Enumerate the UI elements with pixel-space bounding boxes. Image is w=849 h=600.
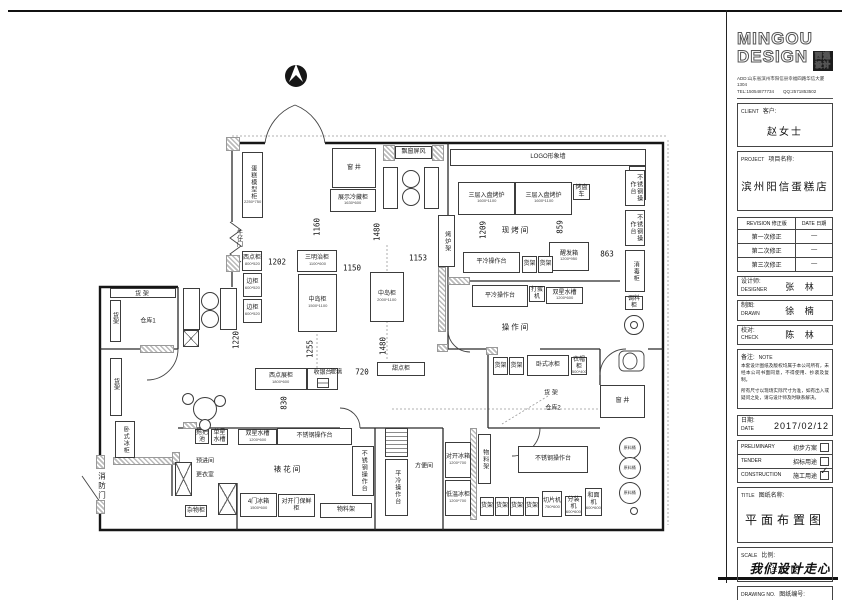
fixture-label: 不锈钢操作台	[296, 433, 332, 440]
circle-label: 原料桶	[624, 466, 636, 470]
wall-hatch	[113, 457, 175, 465]
wall-hatch	[226, 255, 240, 272]
furniture-outline	[385, 428, 408, 457]
fixture-box: 平冷操作台	[472, 285, 528, 307]
fixture-box: 不锈钢操作台	[625, 170, 645, 206]
furniture-outline	[175, 462, 192, 496]
room-label: 仓库1	[140, 316, 155, 325]
project-box: PROJECT 项目名称: 滨州阳信蛋糕店	[737, 151, 833, 211]
fixture-label: 货架	[526, 503, 538, 510]
fixture-box: 窗 井	[332, 148, 376, 188]
fixture-label: 甜点柜	[392, 366, 410, 373]
fixture-label: 不锈钢操作台	[628, 211, 641, 245]
table-circle	[402, 170, 420, 188]
fixture-box: 蛋糕模型柜2250*750	[242, 152, 263, 218]
fixture-label: 平冷操作台	[476, 259, 506, 266]
project-value: 滨州阳信蛋糕店	[741, 179, 829, 194]
room-label: 玻璃	[330, 367, 342, 376]
fixture-label: 衣帽柜	[572, 357, 586, 370]
company-phone: TEL:15054877734 QQ:2571853502	[737, 89, 833, 96]
fixture-box: 打蛋机	[529, 286, 545, 302]
client-label-cn: 客户:	[763, 106, 777, 115]
wall-hatch	[140, 345, 174, 353]
wall-hatch	[470, 428, 477, 520]
wall-hatch	[486, 347, 498, 355]
usage-checkbox	[820, 471, 829, 480]
check-row: 校对:CHECK 陈 林	[737, 325, 833, 345]
dimension-label: 1480	[373, 223, 382, 241]
fixture-label: 烤盘车	[574, 185, 589, 198]
furniture-outline	[183, 330, 199, 347]
fixture-label: 飘窗屏风	[401, 149, 425, 156]
fixture-box: 分装机600*600	[565, 496, 582, 516]
stamp-line-1: 西遇	[815, 52, 831, 61]
company-contact: ADD:山东省滨州市阳信县幸福四路华信大厦1304 TEL:1505487773…	[737, 76, 833, 99]
fixture-label: 分装机	[566, 497, 581, 510]
table-circle	[182, 393, 194, 405]
fixture-size: 600*520	[245, 312, 260, 316]
fixture-label: 调料柜	[626, 296, 642, 309]
check-name: 陈 林	[771, 328, 832, 341]
wall-hatch	[438, 267, 446, 332]
table-circle	[214, 395, 226, 407]
table-circle	[630, 507, 638, 515]
dimension-label: 830	[280, 396, 289, 410]
room-label: 消防门	[97, 472, 108, 501]
fixture-label: 不锈钢操作台	[360, 450, 367, 492]
fixture-size: 1500*1100	[308, 304, 327, 308]
room-label: 牛仔门	[235, 229, 244, 247]
fixture-box: 卧式冰柜	[527, 355, 569, 376]
fixture-box: 货架	[495, 497, 509, 516]
table-circle	[402, 188, 420, 206]
fixture-box: 消毒柜	[625, 250, 645, 292]
fixture-box: 双星水槽1200*600	[238, 429, 277, 445]
revision-label: 第三次修正	[738, 257, 796, 271]
furniture-outline	[218, 483, 237, 515]
fixture-box: 和面机600*600	[585, 488, 602, 516]
dimension-label: 1150	[343, 264, 361, 273]
fixture-size: 1500*600	[250, 506, 267, 510]
fixture-size: 1100*600	[308, 262, 325, 266]
fixture-label: 货架	[523, 261, 535, 268]
dwgno-label-en: DRAWING NO.	[741, 592, 775, 598]
room-label: 货架	[111, 312, 120, 324]
drawn-name: 徐 楠	[771, 304, 832, 317]
dimension-label: 1220	[232, 331, 241, 349]
table-circle	[201, 292, 219, 310]
dimension-label: 859	[556, 220, 565, 234]
fixture-box: 西点展柜1800*600	[255, 368, 307, 390]
table-circle	[201, 310, 219, 328]
fixture-label: 消毒柜	[632, 261, 639, 282]
company-address: ADD:山东省滨州市阳信县幸福四路华信大厦1304	[737, 76, 833, 90]
usage-label-cn: 招标用途	[793, 457, 817, 466]
revision-date: —	[796, 229, 833, 243]
fixture-box: 西点柜800*520	[242, 251, 262, 271]
fixture-box: 货架	[509, 357, 524, 375]
wall-hatch	[432, 145, 444, 161]
fixture-box: 飘窗屏风	[395, 146, 432, 159]
fixture-box: 双星水槽1200*600	[546, 287, 583, 304]
client-value: 赵女士	[741, 123, 829, 138]
fixture-label: 拖把池	[196, 430, 208, 443]
revision-label: 第二次修正	[738, 243, 796, 257]
wall-hatch	[437, 344, 448, 352]
fixture-label: 物料架	[337, 507, 355, 514]
fixture-box: 窗 井	[600, 385, 645, 418]
usage-checkbox	[820, 457, 829, 466]
fixture-size: 600*520	[245, 286, 260, 290]
title-label-en: TITLE	[741, 493, 755, 499]
dwgno-label-cn: 图纸编号:	[779, 589, 805, 598]
fixture-box: 不锈钢操作台	[625, 210, 645, 246]
fixture-box: 不锈钢操作台	[352, 446, 374, 496]
fixture-label: 烤炉架	[443, 231, 450, 252]
barrel-circle: 原料桶	[619, 457, 641, 479]
revision-row: 第三次修正—	[738, 257, 833, 271]
fixture-box: 物料架	[478, 434, 491, 484]
fixture-box: 切片机750*600	[542, 491, 562, 517]
fixture-box: 货架	[522, 256, 537, 273]
fixture-box: 货架	[510, 497, 524, 516]
fixture-box: 不锈钢操作台	[277, 428, 352, 445]
brand-mark-icon	[285, 64, 307, 87]
revision-header: REVISION 修正版	[738, 217, 796, 229]
fixture-label: 杂物柜	[187, 508, 205, 515]
fixture-box: 调料柜	[625, 296, 643, 310]
drawing-sheet: 蛋糕模型柜2250*750窗 井展示冷藏柜1630*600飘窗屏风LOGO形象墙…	[0, 0, 849, 600]
room-label: 方便间	[415, 461, 433, 470]
fixture-box: 对开冰箱1200*700	[445, 442, 471, 478]
logo-stamp: 西遇 设计	[813, 51, 833, 71]
drawing-title: 平面布置图	[741, 511, 829, 528]
fixture-box: 平冷操作台	[385, 459, 408, 516]
room-label: 预进间	[196, 456, 214, 465]
dimension-label: 1209	[479, 221, 488, 239]
company-slogan: 我们设计走心	[745, 558, 835, 577]
fixture-box: 烤炉架	[438, 215, 455, 267]
wall-hatch	[96, 500, 105, 514]
circle-label: 原料桶	[624, 446, 636, 450]
dimension-label: 863	[600, 250, 614, 259]
usage-label-en: PRELIMINARY	[741, 444, 775, 450]
date-value: 2017/02/12	[771, 421, 832, 431]
fixture-label: 卧式冰柜	[122, 426, 129, 454]
designer-name: 张 林	[771, 280, 832, 293]
company-logo: MINGOU DESIGN 西遇 设计	[737, 30, 833, 66]
fixture-label: 货架	[511, 503, 523, 510]
furniture-outline	[424, 167, 439, 209]
fixture-box: 烤盘车	[573, 184, 590, 200]
note-text-1: 本套设计图纸及版权均属于本公司所有，未经本公司书面同意，不得使用、抄袭及复制。	[741, 363, 829, 384]
fixture-box: 货架	[493, 357, 508, 375]
client-box: CLIENT 客户: 赵女士	[737, 103, 833, 147]
fixture-box: 单星水槽	[211, 429, 228, 445]
fixture-box: 卧式冰柜	[115, 421, 135, 458]
wall-hatch	[383, 145, 395, 161]
logo-line-1: MINGOU	[737, 30, 833, 48]
fixture-label: 货架	[510, 363, 522, 370]
fixture-size: 800*520	[244, 262, 259, 266]
fixture-label: 和面机	[586, 493, 601, 506]
fixture-box: 三层入盘烤炉1600*1100	[458, 182, 515, 215]
fixture-label: 货架	[539, 261, 551, 268]
fixture-size: 600*600	[566, 510, 581, 514]
fixture-box: 边柜600*520	[243, 273, 262, 297]
fixture-size: 500*400	[571, 370, 586, 374]
fixture-size: 2250*750	[244, 200, 261, 204]
furniture-outline	[383, 167, 398, 209]
usage-section: PRELIMINARY初步方案TENDER招标用途CONSTRUCTION施工用…	[737, 440, 833, 483]
fixture-label: 窗 井	[347, 165, 361, 172]
revision-row: 第二次修正—	[738, 243, 833, 257]
designer-row: 设计师:DESIGNER 张 林	[737, 276, 833, 296]
note-text-2: 所有尺寸以现场实际尺寸为准，如有出入或疑问之处，请与设计师及时联系解决。	[741, 388, 829, 402]
drawing-no-box: DRAWING NO. 图纸编号: D-08	[737, 586, 833, 600]
fixture-size: 1630*600	[344, 202, 361, 206]
furniture-outline	[220, 288, 237, 330]
fixture-label: 单星水槽	[212, 430, 227, 443]
usage-row-construction: CONSTRUCTION施工用途	[737, 469, 833, 483]
fixture-box: 衣帽柜500*400	[571, 357, 587, 375]
revision-label: 第一次修正	[738, 229, 796, 243]
usage-label-en: TENDER	[741, 458, 762, 464]
fixture-size: 1200*700	[449, 499, 466, 503]
fixture-size: 1200*600	[556, 297, 573, 301]
project-label-en: PROJECT	[741, 157, 764, 163]
fixture-box: 不锈钢操作台	[518, 446, 588, 473]
title-box: TITLE 图纸名称: 平面布置图	[737, 487, 833, 543]
fixture-box: 杂物柜	[185, 505, 207, 517]
fixture-box: 货架	[538, 256, 553, 273]
table-circle	[199, 419, 211, 431]
fixture-size: 1200*600	[249, 438, 266, 442]
fixture-label: 平冷操作台	[393, 470, 400, 505]
room-label: 货 架	[135, 289, 149, 298]
fixture-box: 物料架	[320, 503, 372, 518]
room-label: 仓库2	[545, 403, 560, 412]
barrel-circle: 原料桶	[619, 437, 641, 459]
fixture-label: 对开门保鲜柜	[279, 499, 314, 512]
fixture-label: LOGO形象墙	[530, 154, 565, 161]
dimension-label: 1160	[313, 218, 322, 236]
fixture-label: 物料架	[481, 449, 488, 470]
fixture-box: 中岛柜1500*1100	[298, 274, 337, 332]
fixture-size: 600*600	[586, 506, 601, 510]
usage-label-cn: 施工用途	[793, 471, 817, 480]
cash-register-icon	[317, 378, 329, 388]
fixture-box: 中岛柜2000*1100	[370, 272, 404, 322]
dimension-label: 1480	[379, 337, 388, 355]
fixture-label: 打蛋机	[530, 287, 544, 300]
revision-date: —	[796, 257, 833, 271]
usage-row-preliminary: PRELIMINARY初步方案	[737, 440, 833, 455]
fixture-label: 窗 井	[616, 398, 630, 405]
fixture-label: 卧式冰柜	[536, 362, 560, 369]
room-label: 现烤间	[502, 225, 531, 236]
wall-hatch	[96, 455, 105, 469]
fixture-box: LOGO形象墙	[450, 149, 646, 166]
wall-hatch	[183, 422, 197, 429]
usage-label-en: CONSTRUCTION	[741, 472, 781, 478]
dimension-label: 1255	[306, 340, 315, 358]
fixture-size: 750*600	[544, 505, 559, 509]
fixture-size: 2000*1100	[377, 298, 396, 302]
fixture-box: 货架	[525, 497, 539, 516]
revision-row: 第一次修正—	[738, 229, 833, 243]
date-row: 日期:DATE 2017/02/12	[737, 415, 833, 435]
usage-label-cn: 初步方案	[793, 443, 817, 452]
fixture-box: 三明治柜1100*600	[297, 250, 337, 272]
table-circle	[630, 321, 638, 329]
fixture-size: 1600*1100	[534, 200, 553, 204]
barrel-circle: 原料桶	[619, 482, 641, 504]
fixture-box: 三层入盘烤炉1600*1100	[515, 182, 572, 215]
fixture-box: 拖把池	[195, 429, 209, 444]
fixture-label: 蛋糕模型柜	[249, 165, 256, 200]
title-block: MINGOU DESIGN 西遇 设计 ADD:山东省滨州市阳信县幸福四路华信大…	[737, 30, 833, 600]
drawn-row: 制图:DRAWN 徐 楠	[737, 300, 833, 320]
note-box: 备注: NOTE 本套设计图纸及版权均属于本公司所有，未经本公司书面同意，不得使…	[737, 349, 833, 410]
fixture-size: 1200*700	[449, 461, 466, 465]
fixture-label: 货架	[481, 503, 493, 510]
revision-table: REVISION 修正版 DATE 日期 第一次修正—第二次修正—第三次修正—	[737, 217, 833, 272]
client-label-en: CLIENT	[741, 109, 759, 115]
fixture-label: 不锈钢操作台	[535, 456, 571, 463]
fixture-size: 1600*1100	[477, 200, 496, 204]
revision-date-header: DATE 日期	[796, 217, 833, 229]
fixture-box: 低温冰柜1200*700	[445, 480, 471, 516]
fixture-size: 1800*600	[272, 380, 289, 384]
wall-hatch	[226, 137, 240, 151]
room-label: 货 架	[544, 388, 558, 397]
fixture-size: 1200*950	[560, 258, 577, 262]
fixture-box: 醒发箱1200*950	[549, 242, 589, 271]
furniture-outline	[183, 288, 200, 330]
note-label-cn: 备注:	[741, 352, 755, 361]
fixture-box: 4门冰箱1500*600	[240, 493, 277, 517]
fixture-box: 甜点柜	[377, 362, 425, 376]
stamp-line-2: 设计	[815, 61, 831, 70]
fixture-box: 平冷操作台	[463, 252, 520, 273]
title-label-cn: 图纸名称:	[759, 490, 785, 499]
fixture-box: 展示冷藏柜1630*600	[330, 189, 376, 212]
fixture-box: 对开门保鲜柜	[278, 494, 315, 517]
floor-plan: 蛋糕模型柜2250*750窗 井展示冷藏柜1630*600飘窗屏风LOGO形象墙…	[0, 0, 849, 600]
room-label: 操作间	[502, 322, 531, 333]
fixture-label: 平冷操作台	[485, 293, 515, 300]
floor-plan-walls	[0, 0, 849, 600]
wall-hatch	[448, 277, 470, 285]
circle-label: 原料桶	[624, 491, 636, 495]
room-label: 裱花间	[274, 464, 303, 475]
revision-date: —	[796, 243, 833, 257]
dimension-label: 1153	[409, 254, 427, 263]
room-label: 更衣室	[196, 470, 214, 479]
note-label-en: NOTE	[759, 355, 773, 361]
fixture-box: 货架	[480, 497, 494, 516]
fixture-label: 货架	[496, 503, 508, 510]
project-label-cn: 项目名称:	[768, 154, 794, 163]
usage-row-tender: TENDER招标用途	[737, 455, 833, 469]
room-label: 货架	[112, 378, 121, 390]
fixture-label: 不锈钢操作台	[628, 171, 641, 205]
fixture-label: 收银台	[313, 370, 331, 377]
dimension-label: 720	[355, 368, 369, 377]
fixture-box: 边柜600*520	[243, 299, 262, 323]
fixture-label: 货架	[494, 363, 506, 370]
dimension-label: 1202	[268, 258, 286, 267]
usage-checkbox	[820, 443, 829, 452]
